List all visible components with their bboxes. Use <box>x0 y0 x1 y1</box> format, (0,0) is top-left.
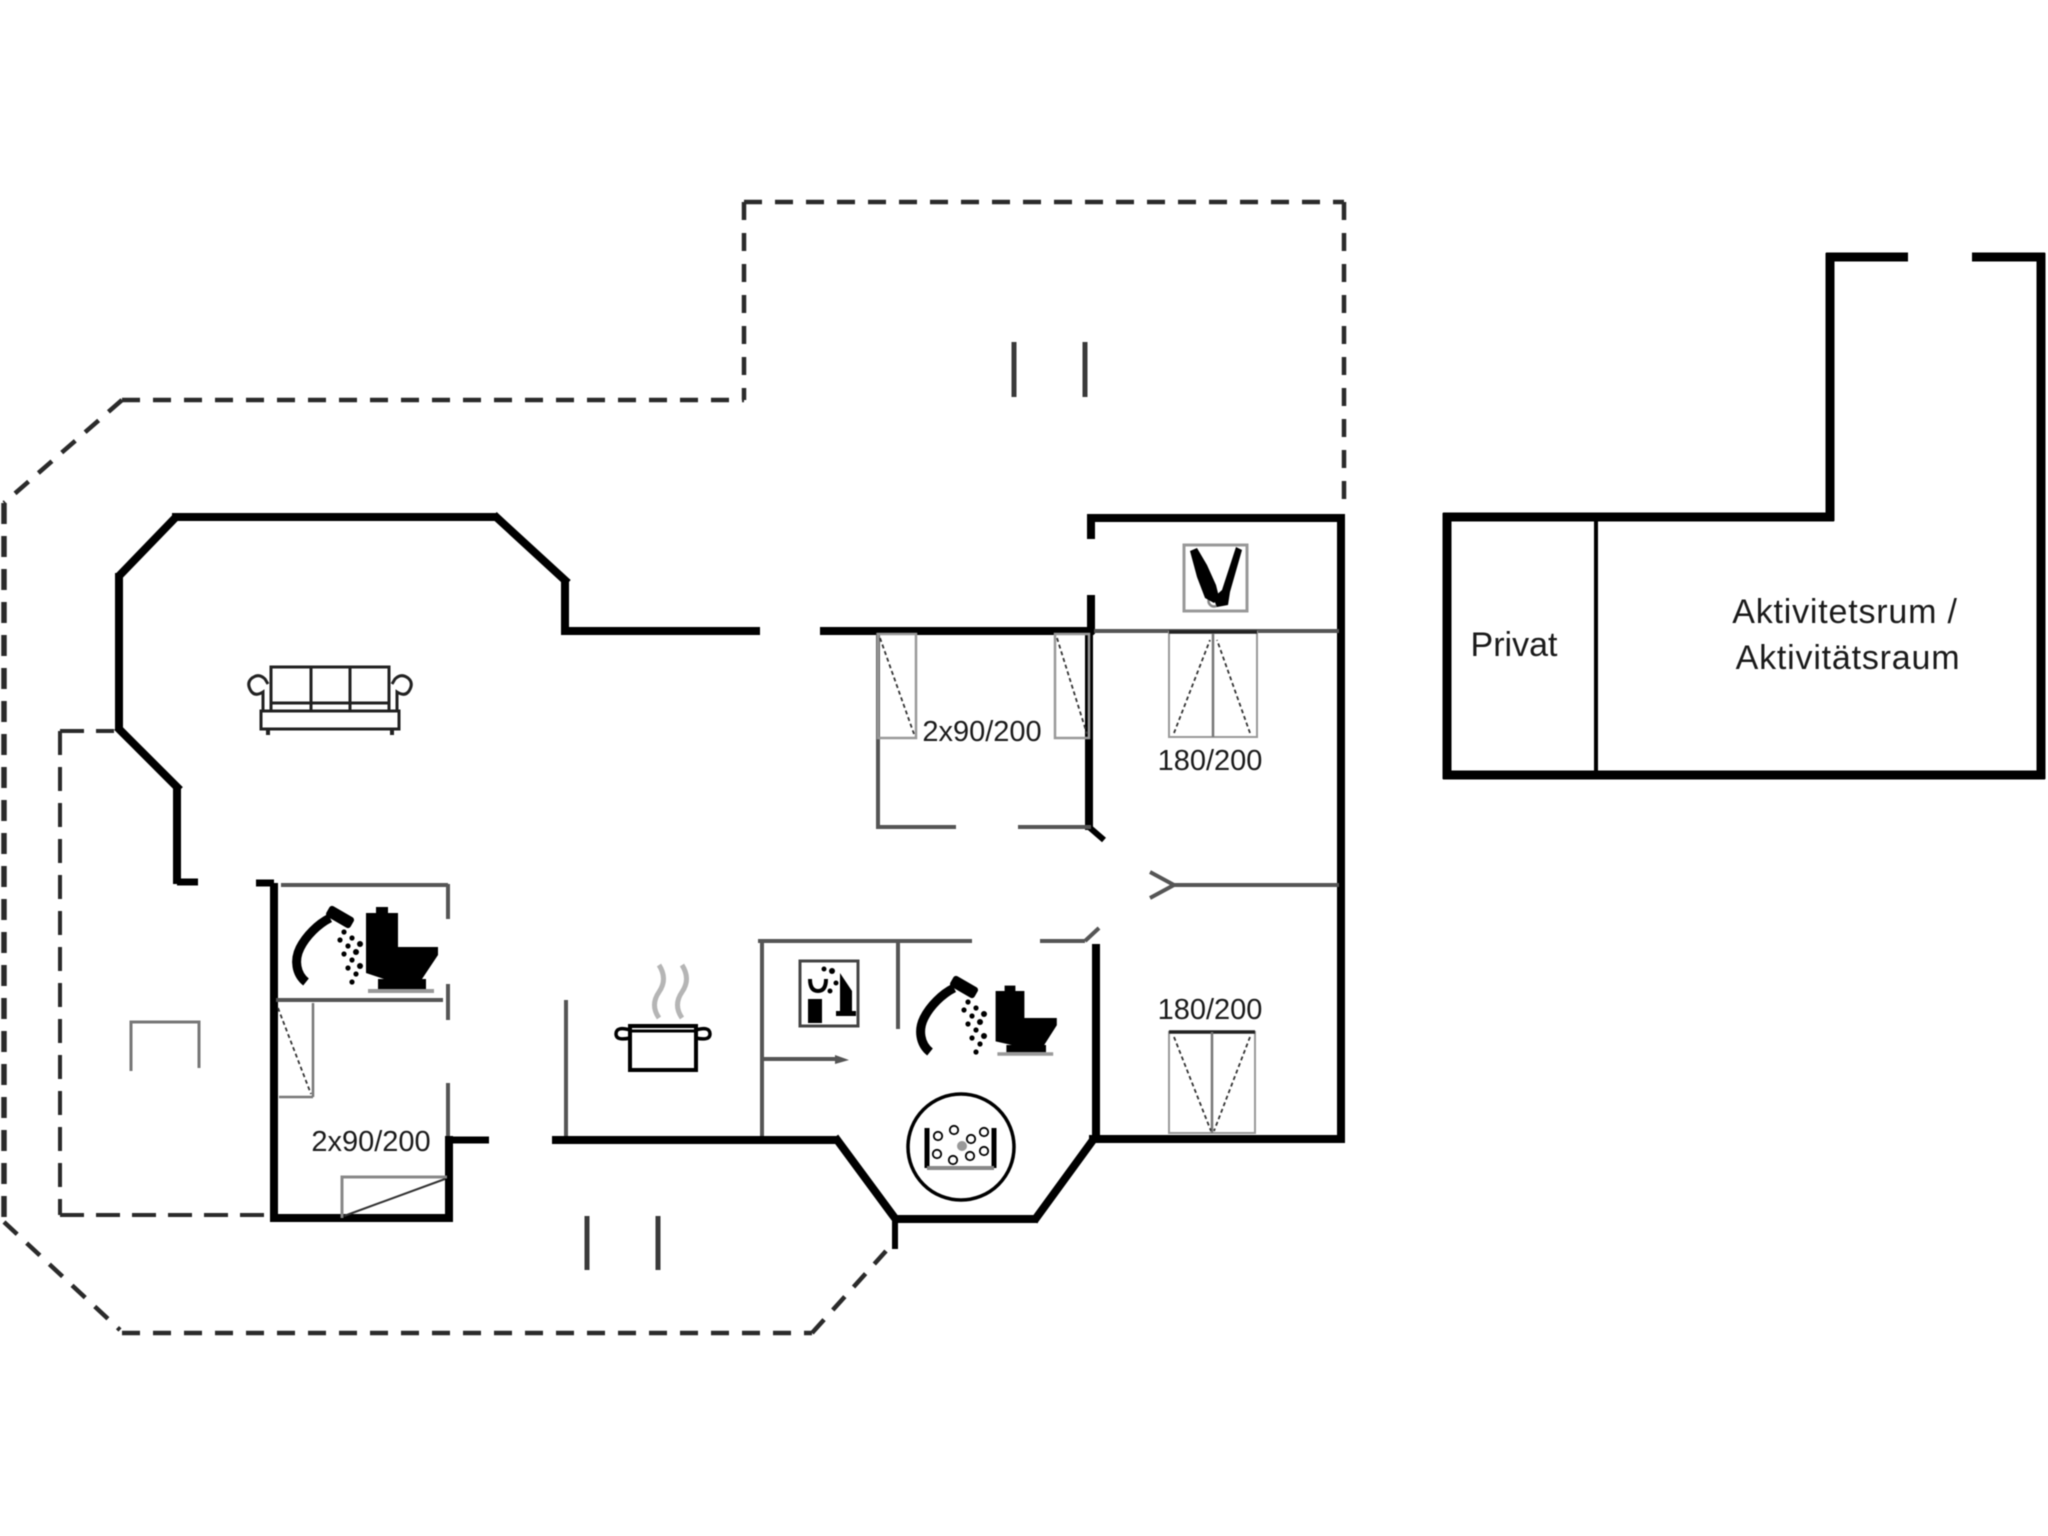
svg-text:Privat: Privat <box>1471 626 1558 664</box>
svg-text:Aktivitetsrum /: Aktivitetsrum / <box>1732 593 1957 631</box>
svg-text:2x90/200: 2x90/200 <box>311 1126 430 1158</box>
svg-text:180/200: 180/200 <box>1158 994 1263 1026</box>
svg-text:Aktivitätsraum: Aktivitätsraum <box>1736 639 1961 677</box>
svg-text:180/200: 180/200 <box>1158 745 1263 777</box>
svg-text:2x90/200: 2x90/200 <box>922 716 1041 748</box>
